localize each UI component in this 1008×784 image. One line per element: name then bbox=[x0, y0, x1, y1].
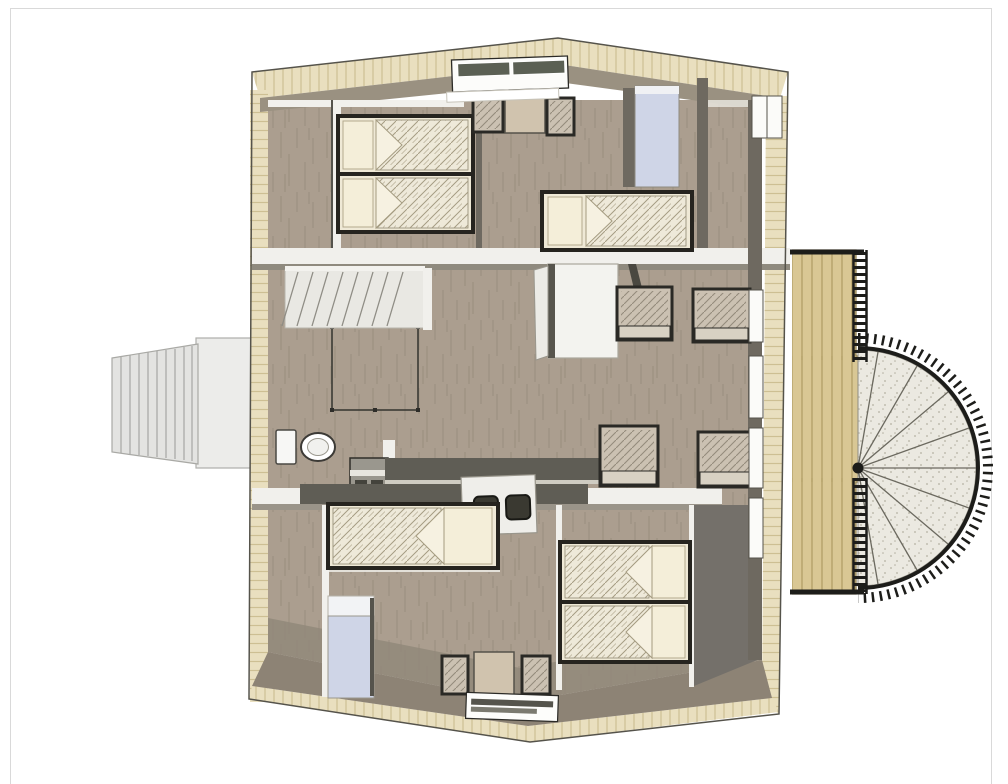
wardrobe-bl-front bbox=[328, 616, 374, 698]
wall-top-right-partition bbox=[697, 78, 708, 252]
toilet-seat bbox=[308, 439, 329, 456]
stair-top-edge bbox=[285, 266, 425, 271]
armchair-1 bbox=[617, 287, 672, 340]
wardrobe-bottom-left bbox=[328, 596, 374, 698]
spiral-center-pole bbox=[853, 463, 864, 474]
skylight-pane-left bbox=[458, 62, 510, 77]
white-cabinet bbox=[534, 264, 618, 360]
kitchen-counter-lower bbox=[300, 484, 588, 504]
cabinet-interior-shadow bbox=[548, 264, 555, 358]
window-right-4 bbox=[749, 498, 763, 558]
wardrobe-bl-edge bbox=[370, 598, 374, 696]
bed-bottom-left bbox=[328, 504, 498, 568]
entry-steps bbox=[112, 338, 266, 468]
wardrobe-tm-top bbox=[635, 86, 679, 94]
bed-top-left-2 bbox=[338, 174, 473, 232]
chair-bottom-right-seat bbox=[525, 659, 547, 691]
deck-lower-planks bbox=[792, 478, 856, 594]
chair-bottom-left-seat bbox=[445, 659, 465, 691]
roof-skylight-top bbox=[445, 56, 568, 102]
armchair-2 bbox=[693, 289, 750, 342]
wall-top-left-room-edge bbox=[331, 100, 333, 250]
armchair-3 bbox=[600, 426, 658, 486]
cabinet-body bbox=[548, 264, 618, 358]
wardrobe-top-middle bbox=[623, 86, 679, 187]
screenshot-canvas bbox=[0, 0, 1008, 784]
wall-top-left-room-back bbox=[268, 100, 464, 107]
wall-divider-upper bbox=[252, 248, 790, 264]
entry-steps-flight bbox=[112, 344, 198, 464]
skylight-pane-right bbox=[513, 60, 565, 75]
interior-staircase bbox=[282, 266, 432, 330]
window-right-2 bbox=[749, 356, 763, 418]
cooktop-burner-right bbox=[506, 495, 531, 520]
floor-plan-rendering bbox=[0, 0, 1008, 784]
table-bottom bbox=[474, 652, 514, 696]
stair-flight bbox=[285, 270, 425, 328]
table-set-bottom bbox=[442, 652, 550, 696]
window-top-right bbox=[752, 96, 782, 138]
wardrobe-bl-top bbox=[328, 596, 374, 616]
deck-upper-planks bbox=[792, 250, 856, 360]
roof-right-planks bbox=[762, 96, 788, 714]
roof-left-planks bbox=[250, 90, 268, 702]
wardrobe-tm-front bbox=[635, 86, 679, 187]
sink-band bbox=[350, 470, 388, 476]
toilet-tank bbox=[276, 430, 296, 464]
chair-top-right-seat bbox=[550, 101, 571, 132]
cabinet-open-door bbox=[534, 266, 548, 360]
roof-window-bottom bbox=[466, 692, 559, 721]
spiral-staircase bbox=[853, 338, 989, 598]
bed-bottom-right-2 bbox=[560, 602, 690, 662]
bed-top-middle bbox=[542, 192, 692, 250]
window-right-1 bbox=[749, 290, 763, 342]
bed-top-left-1 bbox=[338, 116, 473, 174]
window-right-3 bbox=[749, 428, 763, 488]
bed-bottom-right-1 bbox=[560, 542, 690, 602]
stair-side-wall bbox=[423, 268, 432, 330]
armchair-4 bbox=[698, 432, 756, 487]
